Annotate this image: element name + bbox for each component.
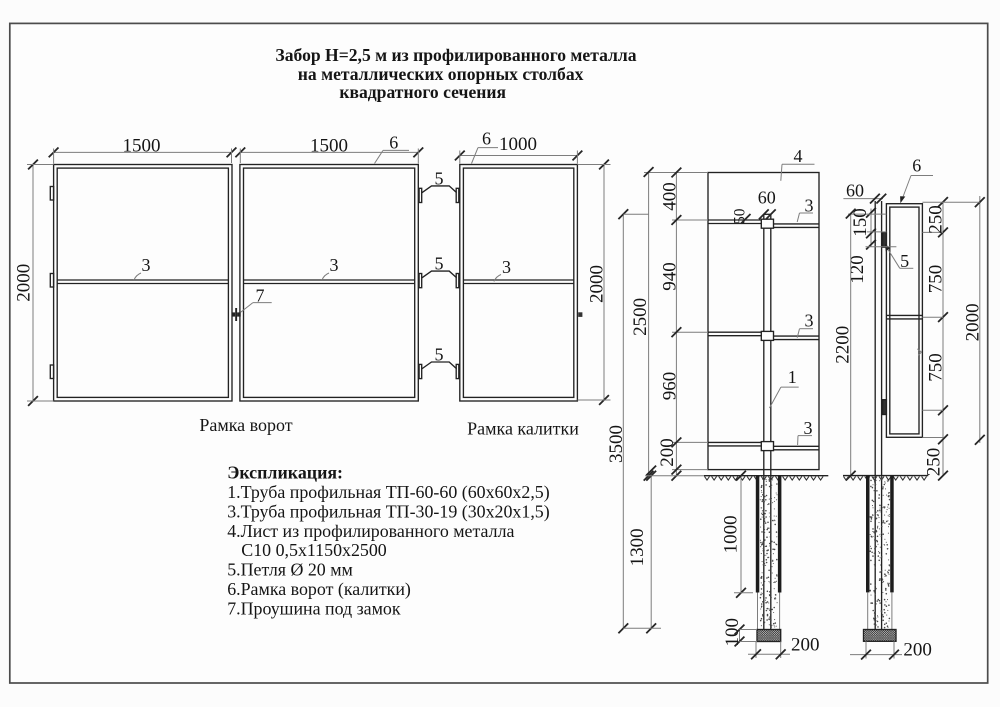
svg-text:С10 0,5х1150х2500: С10 0,5х1150х2500: [241, 540, 387, 560]
svg-text:3: 3: [804, 418, 813, 438]
svg-text:250: 250: [926, 205, 947, 234]
svg-text:6: 6: [389, 133, 398, 153]
svg-text:750: 750: [926, 353, 947, 382]
svg-text:5.Петля Ø 20 мм: 5.Петля Ø 20 мм: [227, 560, 353, 580]
svg-text:100: 100: [722, 618, 743, 647]
svg-text:750: 750: [926, 265, 947, 294]
svg-text:3: 3: [805, 311, 814, 331]
svg-text:Забор Н=2,5 м из профилированн: Забор Н=2,5 м из профилированного металл…: [275, 45, 636, 65]
svg-text:6: 6: [482, 129, 491, 149]
svg-text:150: 150: [850, 208, 871, 237]
svg-text:1000: 1000: [721, 515, 742, 553]
svg-text:2000: 2000: [587, 265, 608, 303]
svg-text:3: 3: [142, 255, 151, 275]
svg-text:2000: 2000: [14, 264, 35, 302]
svg-text:3: 3: [502, 257, 511, 277]
svg-text:960: 960: [660, 372, 681, 401]
svg-text:2500: 2500: [630, 298, 651, 336]
svg-text:6: 6: [912, 156, 921, 176]
svg-text:1: 1: [788, 367, 797, 387]
svg-text:Рамка калитки: Рамка калитки: [467, 419, 579, 439]
svg-text:3.Труба профильная ТП-30-19 (3: 3.Труба профильная ТП-30-19 (30х20х1,5): [227, 501, 550, 522]
svg-text:на металлических опорных столб: на металлических опорных столбах: [298, 64, 584, 84]
svg-text:4.Лист из профилированного мет: 4.Лист из профилированного металла: [227, 521, 514, 541]
svg-text:3500: 3500: [606, 425, 627, 463]
svg-text:60: 60: [846, 181, 864, 201]
svg-text:50: 50: [732, 208, 749, 224]
svg-text:6.Рамка ворот (калитки): 6.Рамка ворот (калитки): [227, 579, 411, 600]
svg-text:1300: 1300: [627, 528, 648, 566]
svg-text:1000: 1000: [499, 134, 537, 155]
svg-text:3: 3: [330, 255, 339, 275]
svg-text:1500: 1500: [123, 135, 161, 156]
svg-text:60: 60: [758, 188, 776, 208]
svg-text:Экспликация:: Экспликация:: [227, 463, 343, 483]
svg-text:4: 4: [794, 146, 803, 166]
svg-text:7.Проушина под замок: 7.Проушина под замок: [227, 598, 401, 618]
svg-text:1.Труба профильная ТП-60-60 (6: 1.Труба профильная ТП-60-60 (60х60х2,5): [227, 482, 550, 503]
svg-text:200: 200: [903, 640, 932, 661]
svg-text:200: 200: [657, 438, 678, 467]
svg-text:940: 940: [660, 262, 681, 291]
svg-text:1500: 1500: [310, 135, 348, 156]
svg-text:400: 400: [660, 182, 681, 211]
svg-text:2000: 2000: [963, 303, 984, 341]
svg-text:200: 200: [791, 635, 820, 656]
svg-text:квадратного сечения: квадратного сечения: [339, 82, 506, 102]
svg-text:250: 250: [924, 448, 945, 477]
svg-text:Рамка ворот: Рамка ворот: [199, 415, 292, 435]
svg-text:120: 120: [847, 255, 868, 284]
svg-text:2200: 2200: [833, 326, 854, 364]
